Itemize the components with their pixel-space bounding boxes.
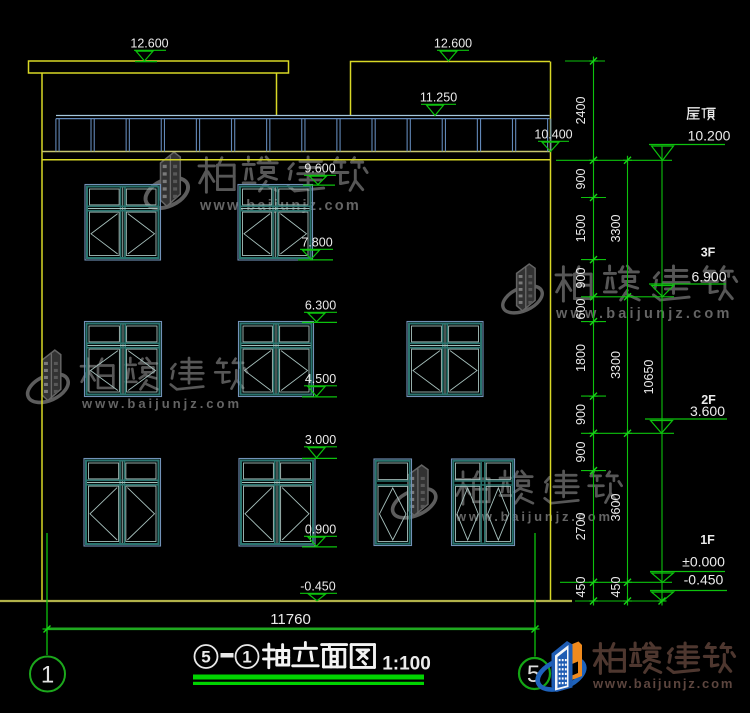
svg-text:900: 900 <box>574 404 588 425</box>
svg-text:2700: 2700 <box>574 513 588 541</box>
svg-text:11760: 11760 <box>270 611 311 628</box>
svg-text:600: 600 <box>574 299 588 320</box>
svg-text:450: 450 <box>609 577 623 598</box>
svg-text:-0.450: -0.450 <box>684 572 724 588</box>
svg-text:3.600: 3.600 <box>690 403 725 419</box>
svg-text:3300: 3300 <box>609 351 623 379</box>
svg-text:4.500: 4.500 <box>305 372 336 386</box>
svg-text:1500: 1500 <box>574 215 588 243</box>
svg-text:3600: 3600 <box>609 494 623 522</box>
svg-text:10650: 10650 <box>642 360 656 395</box>
svg-text:1: 1 <box>242 648 251 667</box>
svg-text:9.600: 9.600 <box>304 162 335 176</box>
svg-text:3F: 3F <box>701 246 716 260</box>
svg-text:450: 450 <box>574 577 588 598</box>
svg-text:±0.000: ±0.000 <box>682 554 725 570</box>
svg-text:2400: 2400 <box>574 97 588 125</box>
svg-text:900: 900 <box>574 169 588 190</box>
svg-text:www.baijunjz.com: www.baijunjz.com <box>592 676 733 691</box>
svg-text:12.600: 12.600 <box>434 37 472 51</box>
svg-text:3.000: 3.000 <box>305 433 336 447</box>
svg-text:11.250: 11.250 <box>420 91 457 105</box>
svg-text:12.600: 12.600 <box>130 37 168 51</box>
svg-text:1: 1 <box>41 662 54 689</box>
svg-text:1:100: 1:100 <box>382 654 431 675</box>
svg-text:6.300: 6.300 <box>305 299 336 313</box>
svg-text:1800: 1800 <box>574 344 588 372</box>
svg-text:1F: 1F <box>700 533 715 547</box>
svg-text:7.800: 7.800 <box>301 236 332 250</box>
svg-text:0.900: 0.900 <box>305 523 336 537</box>
svg-text:3300: 3300 <box>609 215 623 243</box>
svg-text:900: 900 <box>574 442 588 463</box>
svg-text:900: 900 <box>574 268 588 289</box>
svg-text:5: 5 <box>201 648 210 667</box>
svg-text:6.900: 6.900 <box>691 269 726 285</box>
svg-text:-0.450: -0.450 <box>300 580 335 594</box>
svg-text:10.400: 10.400 <box>534 128 572 142</box>
svg-text:10.200: 10.200 <box>688 128 731 144</box>
